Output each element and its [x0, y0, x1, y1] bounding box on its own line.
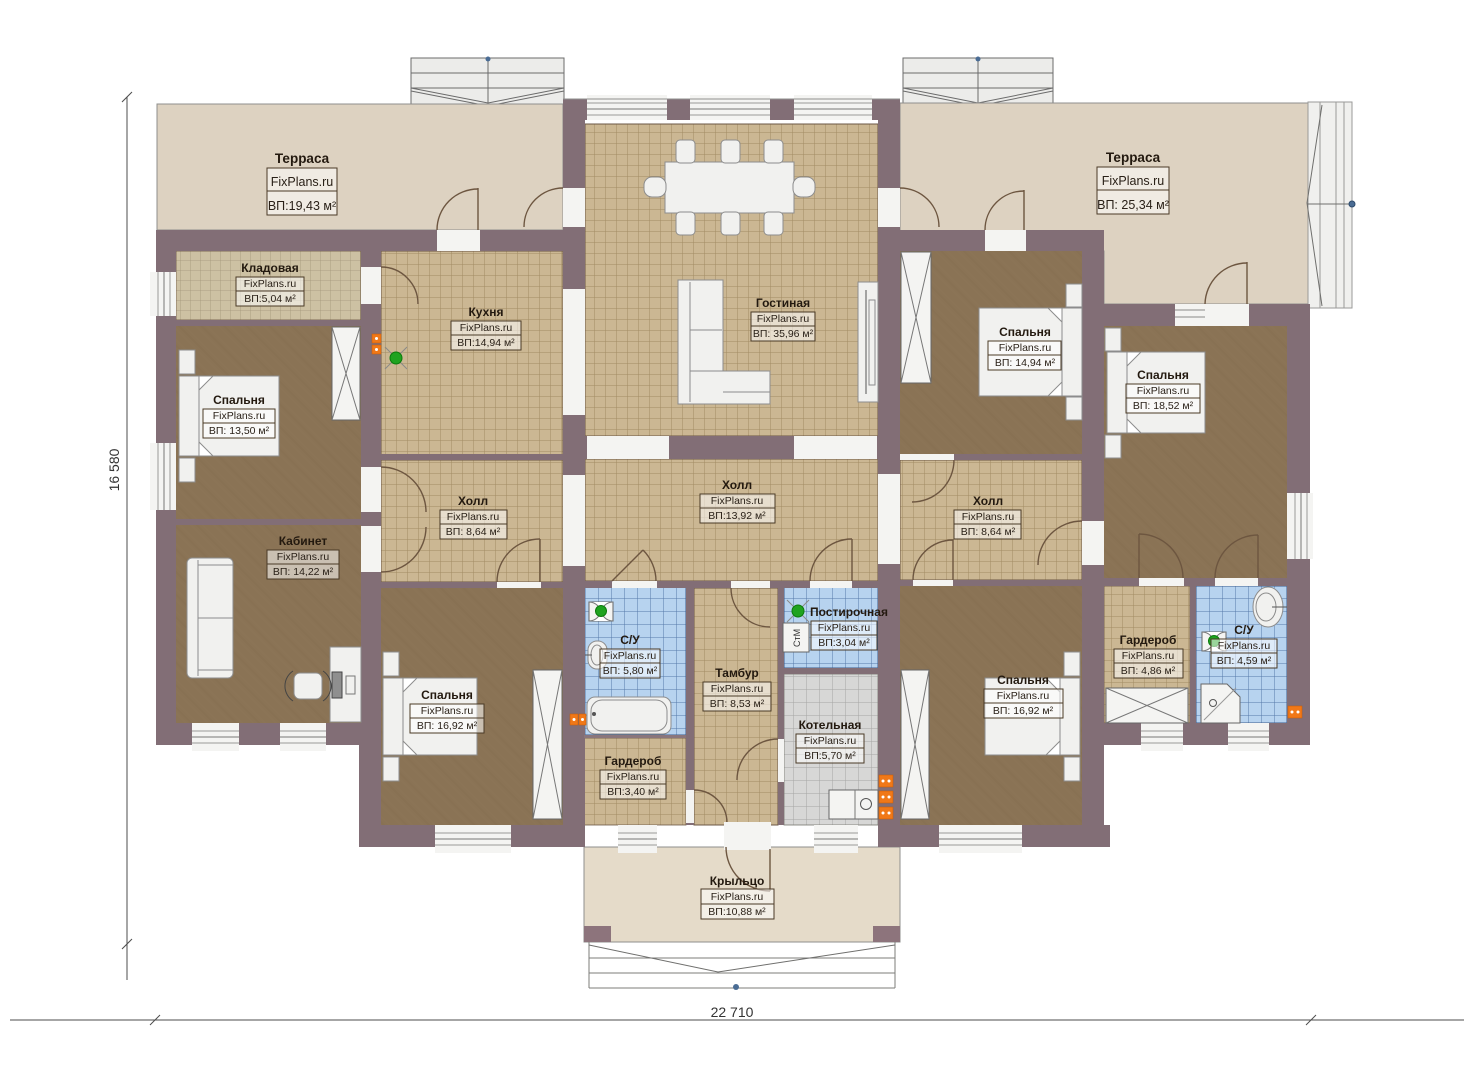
svg-text:С/У: С/У	[620, 633, 640, 647]
svg-text:ВП: 35,96 м²: ВП: 35,96 м²	[753, 328, 814, 340]
svg-text:FixPlans.ru: FixPlans.ru	[213, 410, 266, 422]
svg-text:FixPlans.ru: FixPlans.ru	[804, 735, 857, 747]
svg-text:FixPlans.ru: FixPlans.ru	[757, 313, 810, 325]
svg-text:ВП: 8,64 м²: ВП: 8,64 м²	[446, 526, 501, 538]
svg-text:ВП:5,04 м²: ВП:5,04 м²	[244, 293, 296, 305]
svg-text:FixPlans.ru: FixPlans.ru	[604, 650, 657, 662]
svg-text:FixPlans.ru: FixPlans.ru	[1122, 650, 1175, 662]
svg-text:ВП:3,40 м²: ВП:3,40 м²	[607, 786, 659, 798]
svg-text:FixPlans.ru: FixPlans.ru	[607, 771, 660, 783]
svg-text:ВП:3,04 м²: ВП:3,04 м²	[818, 637, 870, 649]
svg-text:Холл: Холл	[973, 494, 1003, 508]
svg-text:Спальня: Спальня	[421, 688, 473, 702]
svg-text:ВП: 13,50 м²: ВП: 13,50 м²	[209, 425, 270, 437]
svg-text:Холл: Холл	[458, 494, 488, 508]
svg-text:Спальня: Спальня	[997, 673, 1049, 687]
svg-text:Спальня: Спальня	[999, 325, 1051, 339]
svg-text:FixPlans.ru: FixPlans.ru	[711, 683, 764, 695]
svg-text:FixPlans.ru: FixPlans.ru	[997, 690, 1050, 702]
svg-text:ВП: 4,59 м²: ВП: 4,59 м²	[1217, 655, 1272, 667]
svg-text:ВП: 4,86 м²: ВП: 4,86 м²	[1121, 665, 1176, 677]
svg-text:22 710: 22 710	[711, 1004, 754, 1020]
svg-text:ВП:19,43 м²: ВП:19,43 м²	[268, 199, 336, 213]
svg-text:FixPlans.ru: FixPlans.ru	[447, 511, 500, 523]
svg-text:FixPlans.ru: FixPlans.ru	[999, 342, 1052, 354]
svg-text:ВП: 14,94 м²: ВП: 14,94 м²	[995, 357, 1056, 369]
svg-text:FixPlans.ru: FixPlans.ru	[277, 551, 330, 563]
svg-text:ВП: 8,64 м²: ВП: 8,64 м²	[961, 526, 1016, 538]
svg-text:Спальня: Спальня	[1137, 368, 1189, 382]
svg-text:Кладовая: Кладовая	[241, 261, 298, 275]
svg-text:FixPlans.ru: FixPlans.ru	[1218, 640, 1271, 652]
svg-text:ВП:13,92 м²: ВП:13,92 м²	[708, 510, 766, 522]
svg-text:С/У: С/У	[1234, 623, 1254, 637]
svg-text:Крыльцо: Крыльцо	[710, 874, 765, 888]
svg-text:FixPlans.ru: FixPlans.ru	[711, 891, 764, 903]
svg-text:Кабинет: Кабинет	[279, 534, 328, 548]
svg-text:Холл: Холл	[722, 478, 752, 492]
svg-text:16 580: 16 580	[106, 448, 122, 491]
svg-text:ВП: 8,53 м²: ВП: 8,53 м²	[710, 698, 765, 710]
svg-text:ВП:10,88 м²: ВП:10,88 м²	[708, 906, 766, 918]
svg-text:Терраса: Терраса	[1106, 150, 1161, 165]
svg-text:FixPlans.ru: FixPlans.ru	[421, 705, 474, 717]
svg-text:Кухня: Кухня	[468, 305, 503, 319]
svg-text:Постирочная: Постирочная	[810, 605, 888, 619]
svg-text:ВП: 16,92 м²: ВП: 16,92 м²	[417, 720, 478, 732]
svg-text:FixPlans.ru: FixPlans.ru	[244, 278, 297, 290]
svg-text:FixPlans.ru: FixPlans.ru	[818, 622, 871, 634]
svg-text:FixPlans.ru: FixPlans.ru	[962, 511, 1015, 523]
svg-text:FixPlans.ru: FixPlans.ru	[711, 495, 764, 507]
svg-text:Гостиная: Гостиная	[756, 296, 810, 310]
svg-text:СтМ: СтМ	[792, 629, 802, 647]
svg-text:ВП: 25,34 м²: ВП: 25,34 м²	[1097, 198, 1169, 212]
svg-text:Гардероб: Гардероб	[605, 754, 662, 768]
svg-text:FixPlans.ru: FixPlans.ru	[1137, 385, 1190, 397]
svg-text:Тамбур: Тамбур	[715, 666, 759, 680]
svg-text:FixPlans.ru: FixPlans.ru	[271, 175, 334, 189]
svg-text:FixPlans.ru: FixPlans.ru	[1102, 174, 1165, 188]
svg-text:FixPlans.ru: FixPlans.ru	[460, 322, 513, 334]
svg-text:ВП:5,70 м²: ВП:5,70 м²	[804, 750, 856, 762]
svg-text:ВП: 18,52 м²: ВП: 18,52 м²	[1133, 400, 1194, 412]
svg-text:Котельная: Котельная	[799, 718, 862, 732]
svg-text:Гардероб: Гардероб	[1120, 633, 1177, 647]
svg-text:ВП: 5,80 м²: ВП: 5,80 м²	[603, 665, 658, 677]
svg-text:Терраса: Терраса	[275, 151, 330, 166]
svg-text:ВП:14,94 м²: ВП:14,94 м²	[457, 337, 515, 349]
svg-text:ВП: 16,92 м²: ВП: 16,92 м²	[993, 705, 1054, 717]
svg-text:ВП: 14,22 м²: ВП: 14,22 м²	[273, 566, 334, 578]
svg-text:Спальня: Спальня	[213, 393, 265, 407]
